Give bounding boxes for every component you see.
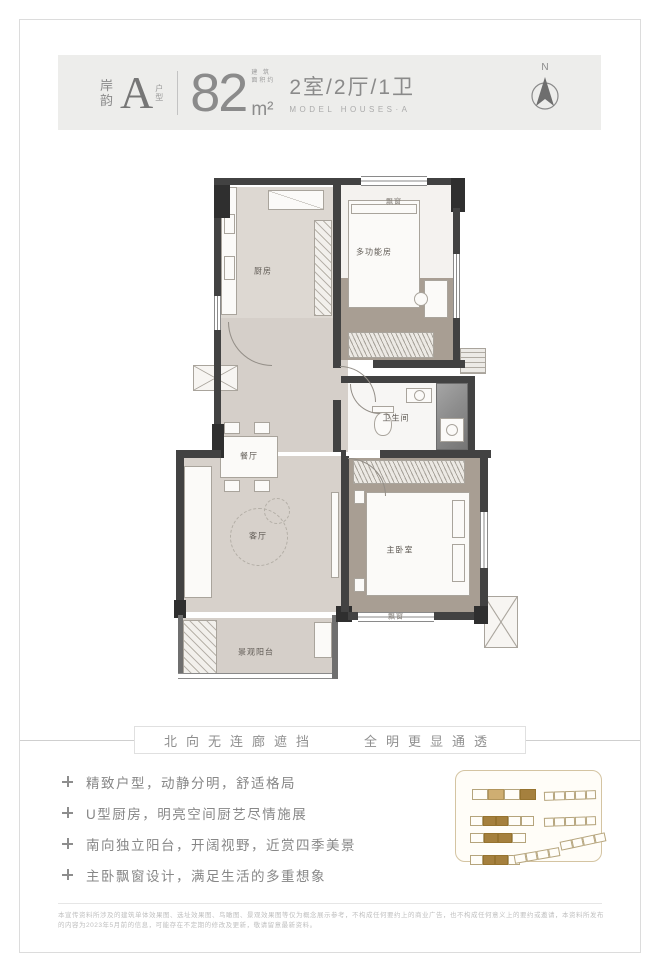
header-band: 岸 韵 A 户 型 82 建 筑 面积约 m² 2室/2厅/1卫 MODEL H… (58, 55, 601, 130)
compass-icon (528, 74, 562, 114)
room-label-bay-top: 飘窗 (386, 198, 402, 207)
balcony-ac-unit (183, 620, 217, 676)
room-count-text: 2室/2厅/1卫 (289, 71, 415, 101)
dining-chair (224, 422, 240, 434)
disclaimer-divider (58, 903, 602, 904)
site-map-building (544, 790, 596, 801)
tv-cabinet (331, 492, 339, 578)
compass-north-label: N (541, 62, 548, 74)
compass: N (527, 62, 563, 124)
slogan-right-text: 全明更显通透 (364, 731, 496, 750)
washer-door (446, 424, 458, 436)
series-char-top: 岸 (100, 78, 114, 93)
plus-star-icon (62, 776, 73, 787)
series-char-bottom: 韵 (100, 93, 114, 108)
dining-chair (224, 480, 240, 492)
kitchen-tall-cabinet (314, 220, 332, 316)
master-pillow (452, 500, 465, 538)
area-unit: m² (251, 100, 275, 119)
washbasin-bowl (414, 390, 425, 401)
room-label-master: 主卧室 (387, 546, 414, 555)
model-houses-subtitle: MODEL HOUSES·A (289, 105, 415, 114)
feature-item: 精致户型，动静分明，舒适格局 (62, 766, 356, 797)
sofa (184, 466, 212, 598)
plus-star-icon (62, 869, 73, 880)
slogan-line-right (526, 740, 640, 741)
slogan-box: 北向无连廊遮挡 全明更显通透 (134, 726, 526, 754)
room-label-bay-bottom: 飘窗 (388, 613, 404, 622)
room-label-living: 客厅 (249, 532, 267, 541)
balcony-sink (314, 622, 332, 658)
room-label-bedroom2: 多功能房 (356, 248, 392, 257)
area-note: 建 筑 面积约 (251, 69, 275, 85)
room-label-bathroom: 卫生间 (383, 414, 410, 423)
site-map-building (560, 832, 607, 850)
ac-platform (484, 596, 518, 648)
site-map-building (470, 816, 534, 826)
rug-circle-small (264, 498, 290, 524)
site-map-building (544, 816, 596, 827)
slogan-bar: 北向无连廊遮挡 全明更显通透 (20, 726, 640, 754)
bedroom2-chair (414, 292, 428, 306)
room-label-dining: 餐厅 (240, 452, 258, 461)
nightstand (354, 578, 365, 592)
site-map-building (470, 833, 526, 843)
floor-plan: 飘窗 厨房 多功能房 卫生间 餐厅 客厅 主卧室 飘窗 景观阳台 (168, 160, 530, 708)
dining-chair (254, 480, 270, 492)
feature-item: U型厨房，明亮空间厨艺尽情施展 (62, 797, 356, 828)
unit-type-letter: A (120, 70, 153, 116)
slogan-left-text: 北向无连廊遮挡 (164, 731, 318, 750)
plus-star-icon (62, 838, 73, 849)
site-map-building (514, 847, 561, 864)
room-label-kitchen: 厨房 (254, 267, 272, 276)
kitchen-stove (224, 256, 235, 280)
plus-star-icon (62, 807, 73, 818)
unit-type-label: 户 型 (155, 84, 163, 102)
area-value: 82 (190, 66, 246, 120)
dining-chair (254, 422, 270, 434)
feature-item: 南向独立阳台，开阔视野，近赏四季美景 (62, 828, 356, 859)
master-pillow (452, 544, 465, 582)
bedroom2-pillow (351, 204, 417, 214)
room-label-balcony: 景观阳台 (238, 648, 274, 657)
site-map-building (470, 855, 520, 865)
slogan-line-left (20, 740, 134, 741)
feature-item: 主卧飘窗设计，满足生活的多重想象 (62, 859, 356, 890)
feature-list: 精致户型，动静分明，舒适格局 U型厨房，明亮空间厨艺尽情施展 南向独立阳台，开阔… (62, 766, 356, 890)
kitchen-cabinet (268, 190, 324, 210)
bedroom2-wardrobe (348, 332, 434, 358)
header-divider (177, 71, 178, 115)
disclaimer-text: 本宣传资料所涉及的建筑单体效果图、选址效果图、鸟瞰图、景观效果图等仅为概念展示参… (58, 911, 604, 931)
site-map-building (472, 789, 536, 800)
site-map (455, 770, 602, 862)
series-name: 岸 韵 (100, 78, 114, 108)
